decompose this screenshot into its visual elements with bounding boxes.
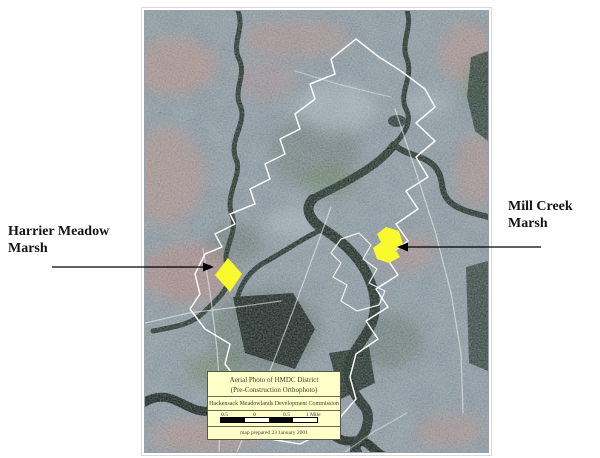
harrier-label-line1: Harrier Meadow bbox=[8, 223, 109, 240]
scale-bar-segment bbox=[293, 418, 317, 422]
mill-creek-label: Mill Creek Marsh bbox=[508, 198, 573, 232]
scale-bar-segment bbox=[221, 418, 245, 422]
scale-bar-segment bbox=[245, 418, 269, 422]
legend-prepared-note: map prepared 23 January 2001 bbox=[208, 427, 340, 439]
scale-bar bbox=[220, 417, 318, 423]
harrier-meadow-label: Harrier Meadow Marsh bbox=[8, 223, 109, 257]
scale-bar-segment bbox=[269, 418, 293, 422]
harrier-label-line2: Marsh bbox=[8, 240, 109, 257]
legend-title-line1: Aerial Photo of HMDC District bbox=[208, 375, 340, 385]
mill-creek-label-line1: Mill Creek bbox=[508, 198, 573, 215]
map-legend: Aerial Photo of HMDC District (Pre-Const… bbox=[207, 371, 341, 440]
legend-commission: Hackensack Meadowlands Development Commi… bbox=[208, 397, 340, 411]
figure-canvas: Aerial Photo of HMDC District (Pre-Const… bbox=[0, 0, 600, 458]
mill-creek-label-line2: Marsh bbox=[508, 215, 573, 232]
legend-scalebar-block: 0.5 0 0.5 1 Mile bbox=[208, 411, 340, 427]
legend-title-block: Aerial Photo of HMDC District (Pre-Const… bbox=[208, 372, 340, 397]
legend-title-line2: (Pre-Construction Orthophoto) bbox=[208, 385, 340, 395]
